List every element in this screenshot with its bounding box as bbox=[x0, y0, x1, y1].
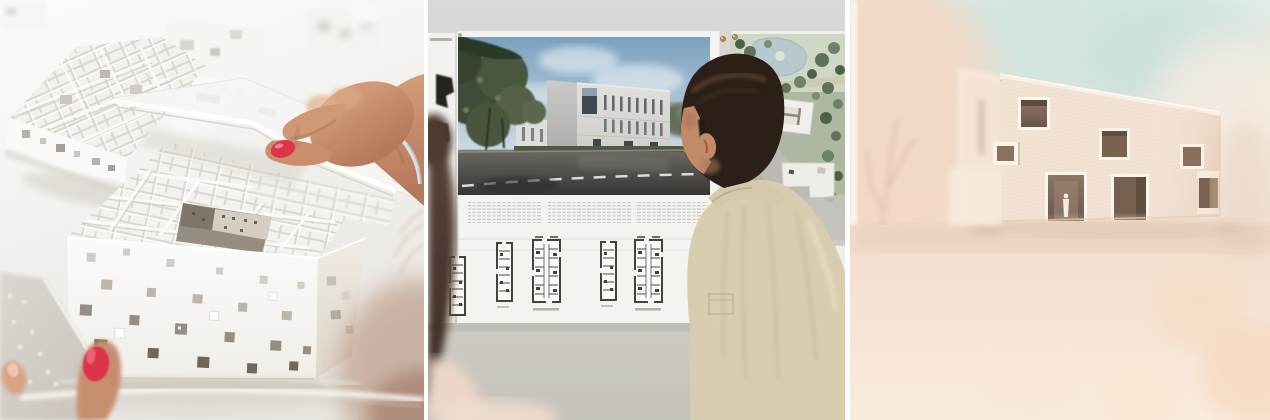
model-hands-photo bbox=[0, 0, 424, 420]
board-text-blocks bbox=[468, 202, 708, 223]
panel-house-model bbox=[850, 0, 1270, 420]
panel-presentation-wall bbox=[428, 0, 845, 420]
push-pin bbox=[720, 36, 725, 41]
model-piece-top-left bbox=[0, 0, 46, 30]
plan-caption bbox=[635, 308, 661, 311]
push-pin bbox=[458, 33, 462, 37]
building-rendering bbox=[434, 36, 710, 195]
house-model-photo bbox=[850, 0, 1270, 420]
push-pin bbox=[732, 34, 737, 39]
presentation-wall-photo bbox=[428, 0, 845, 420]
photo-collage bbox=[0, 0, 1270, 420]
plan-caption bbox=[533, 308, 559, 311]
panel-model-hands bbox=[0, 0, 424, 420]
scale-figure bbox=[1063, 194, 1069, 217]
